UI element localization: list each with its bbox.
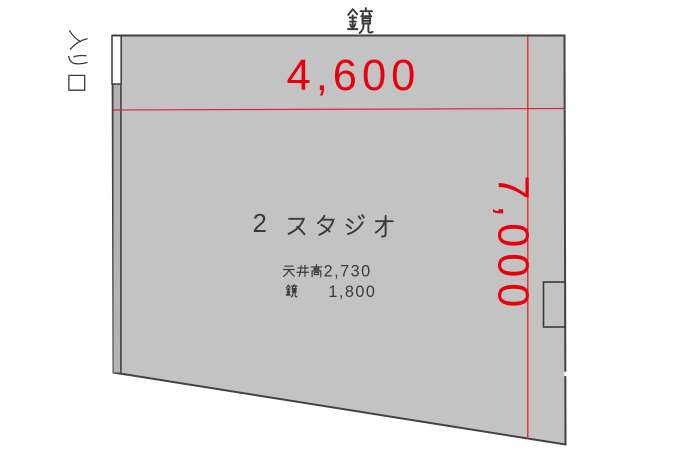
- svg-text:2: 2: [253, 210, 267, 238]
- svg-text:4,600: 4,600: [287, 52, 421, 100]
- svg-text:7,000: 7,000: [488, 175, 536, 313]
- svg-text:1,800: 1,800: [328, 283, 376, 301]
- svg-text:2,730: 2,730: [324, 263, 372, 281]
